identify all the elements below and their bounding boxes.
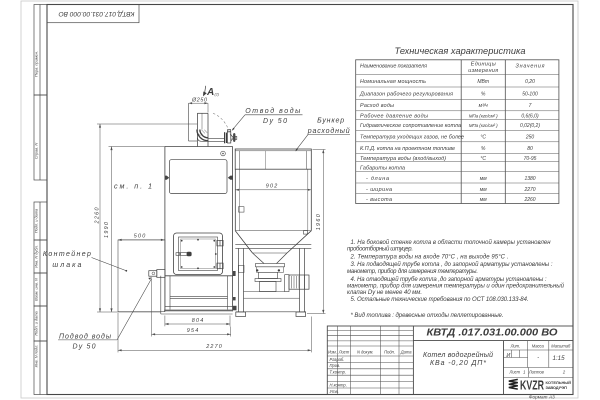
svg-text:МПа (кгс/см² ): МПа (кгс/см² ) bbox=[469, 113, 498, 118]
svg-text:Перв. примен.: Перв. примен. bbox=[34, 51, 39, 77]
svg-text:Температура воды (вход/выход): Температура воды (вход/выход) bbox=[360, 156, 446, 162]
svg-text:7: 7 bbox=[529, 103, 532, 109]
svg-text:70-95: 70-95 bbox=[524, 156, 537, 162]
svg-text:Лист: Лист bbox=[338, 350, 350, 355]
svg-text:4. На отводящей трубе котла ,: 4. На отводящей трубе котла ,до запорной… bbox=[351, 276, 547, 283]
svg-text:1. На боковой стенке котла в: 1. На боковой стенке котла в области топ… bbox=[351, 239, 552, 246]
svg-text:1990: 1990 bbox=[104, 222, 110, 238]
svg-text:МПа (кгс/см² ): МПа (кгс/см² ) bbox=[469, 123, 498, 128]
svg-text:Н.контр.: Н.контр. bbox=[330, 382, 347, 387]
svg-text:Диапазон рабочего регулировани: Диапазон рабочего регулирования bbox=[359, 92, 453, 98]
svg-text:(2): (2) bbox=[215, 93, 219, 97]
svg-text:80: 80 bbox=[527, 146, 533, 152]
svg-text:Гидравлическое сопротивление к: Гидравлическое сопротивление котла bbox=[360, 123, 461, 129]
svg-text:804: 804 bbox=[192, 318, 204, 324]
svg-text:Листов: Листов bbox=[528, 369, 545, 374]
svg-text:мм: мм bbox=[480, 197, 487, 203]
svg-text:Инв. N дубл.: Инв. N дубл. bbox=[34, 245, 39, 268]
svg-text:Номинальная мощность: Номинальная мощность bbox=[360, 79, 426, 85]
svg-text:°С: °С bbox=[480, 156, 486, 162]
svg-text:Формат А3: Формат А3 bbox=[529, 395, 555, 400]
svg-text:Котел водогрейный: Котел водогрейный bbox=[423, 351, 493, 359]
svg-text:Рабочее давление воды: Рабочее давление воды bbox=[360, 113, 428, 119]
svg-text:мм: мм bbox=[480, 187, 487, 193]
svg-text:Лист: Лист bbox=[509, 369, 521, 374]
svg-text:Dy 50: Dy 50 bbox=[73, 344, 96, 351]
svg-text:шлака: шлака bbox=[52, 262, 81, 269]
svg-text:500: 500 bbox=[134, 233, 146, 239]
svg-text:1:15: 1:15 bbox=[552, 355, 565, 362]
svg-text:МВт: МВт bbox=[477, 79, 489, 85]
svg-text:902: 902 bbox=[266, 183, 278, 189]
svg-text:Изм.: Изм. bbox=[328, 350, 337, 355]
svg-text:- высота: - высота bbox=[366, 197, 392, 203]
svg-text:Подп. и дата: Подп. и дата bbox=[34, 310, 39, 335]
svg-text:Ø250: Ø250 bbox=[191, 98, 207, 104]
svg-text:Масштаб: Масштаб bbox=[551, 344, 571, 349]
svg-text:2270: 2270 bbox=[523, 187, 535, 193]
svg-text:N докум.: N докум. bbox=[357, 350, 374, 355]
svg-text:ЗАВОД РЭП: ЗАВОД РЭП bbox=[546, 385, 568, 390]
svg-text:Т.контр.: Т.контр. bbox=[330, 370, 347, 375]
svg-text:Утв.: Утв. bbox=[330, 389, 339, 394]
svg-text:КВТД .017.031.00.000 ВО: КВТД .017.031.00.000 ВО bbox=[427, 327, 558, 339]
svg-text:клапан Dy не менее 40 мм.: клапан Dy не менее 40 мм. bbox=[347, 290, 422, 296]
svg-text:И: И bbox=[506, 353, 510, 359]
svg-text:манометр, прибор для измерени: манометр, прибор для измерения температу… bbox=[347, 283, 565, 290]
svg-text:Пров.: Пров. bbox=[330, 363, 341, 368]
svg-text:- длина: - длина bbox=[366, 176, 389, 182]
svg-text:%: % bbox=[481, 146, 486, 152]
svg-text:2260: 2260 bbox=[523, 197, 535, 203]
svg-text:- ширина: - ширина bbox=[366, 187, 392, 193]
svg-text:0,20: 0,20 bbox=[525, 79, 535, 85]
svg-text:Бункер: Бункер bbox=[317, 118, 344, 125]
svg-text:1960: 1960 bbox=[316, 214, 322, 230]
svg-text:Температура уходящих газов, не: Температура уходящих газов, не более bbox=[360, 135, 464, 141]
svg-text:Расход воды: Расход воды bbox=[360, 103, 394, 109]
svg-text:250: 250 bbox=[525, 135, 535, 141]
svg-text:Взам. инв. N: Взам. инв. N bbox=[34, 278, 39, 301]
svg-text:К.П.Д. котла на проектном топл: К.П.Д. котла на проектном топливе bbox=[360, 146, 455, 152]
svg-text:Значения: Значения bbox=[516, 64, 545, 70]
svg-text:* Вид топлива : древесные от: * Вид топлива : древесные отходы пеллети… bbox=[351, 313, 504, 319]
svg-text:50-100: 50-100 bbox=[522, 92, 538, 98]
svg-text:Лит.: Лит. bbox=[510, 344, 521, 349]
svg-text:Разраб.: Разраб. bbox=[330, 357, 345, 362]
svg-text:пробоотборный штуцер.: пробоотборный штуцер. bbox=[347, 245, 413, 252]
svg-text:-: - bbox=[537, 355, 539, 361]
svg-text:КВа -0,20 ДП*: КВа -0,20 ДП* bbox=[430, 360, 486, 367]
svg-text:измерения: измерения bbox=[468, 68, 498, 74]
svg-text:Дата: Дата bbox=[400, 350, 413, 355]
svg-text:м³/ч: м³/ч bbox=[479, 103, 488, 109]
svg-text:2. Температура воды на входе: 2. Температура воды на входе 70°С , на в… bbox=[350, 254, 509, 260]
svg-text:Отвод воды: Отвод воды bbox=[245, 107, 301, 115]
svg-text:%: % bbox=[481, 92, 486, 98]
svg-text:Масса: Масса bbox=[532, 344, 545, 349]
svg-text:Техническая характеристика: Техническая характеристика bbox=[395, 46, 526, 56]
svg-text:Инв. N подл.: Инв. N подл. bbox=[34, 345, 39, 368]
svg-text:Единицы: Единицы bbox=[471, 62, 496, 68]
svg-text:Подвод воды: Подвод воды bbox=[59, 332, 112, 340]
svg-text:1: 1 bbox=[523, 369, 525, 374]
svg-text:0,02(0,2): 0,02(0,2) bbox=[520, 123, 540, 129]
svg-text:Наименование показателя: Наименование показателя bbox=[360, 64, 427, 70]
svg-text:мм: мм bbox=[480, 176, 487, 182]
svg-text:расходный: расходный bbox=[307, 127, 350, 135]
svg-text:Подп. и дата: Подп. и дата bbox=[34, 208, 39, 233]
svg-text:5. Остальные технические треб: 5. Остальные технические требования по О… bbox=[351, 297, 529, 303]
svg-text:Габариты котла: Габариты котла bbox=[360, 166, 405, 172]
svg-text:А: А bbox=[206, 87, 214, 98]
svg-text:манометр, прибор для измерени: манометр, прибор для измерения температу… bbox=[347, 269, 478, 275]
svg-text:КВТД.017.031.00.000 ВО: КВТД.017.031.00.000 ВО bbox=[58, 10, 134, 17]
svg-text:Подп.: Подп. bbox=[384, 350, 395, 355]
svg-text:954: 954 bbox=[187, 328, 199, 334]
svg-text:0,6(6,0): 0,6(6,0) bbox=[521, 113, 539, 119]
svg-text:KVZR: KVZR bbox=[520, 377, 544, 392]
svg-text:1380: 1380 bbox=[524, 176, 535, 182]
svg-text:Справ. N: Справ. N bbox=[34, 143, 39, 159]
svg-text:Контейнер: Контейнер bbox=[43, 250, 91, 258]
svg-text:°С: °С bbox=[480, 135, 486, 141]
svg-text:Dy 50: Dy 50 bbox=[263, 118, 287, 125]
svg-text:3. На подводящей трубе котла: 3. На подводящей трубе котла , до запорн… bbox=[351, 261, 553, 268]
